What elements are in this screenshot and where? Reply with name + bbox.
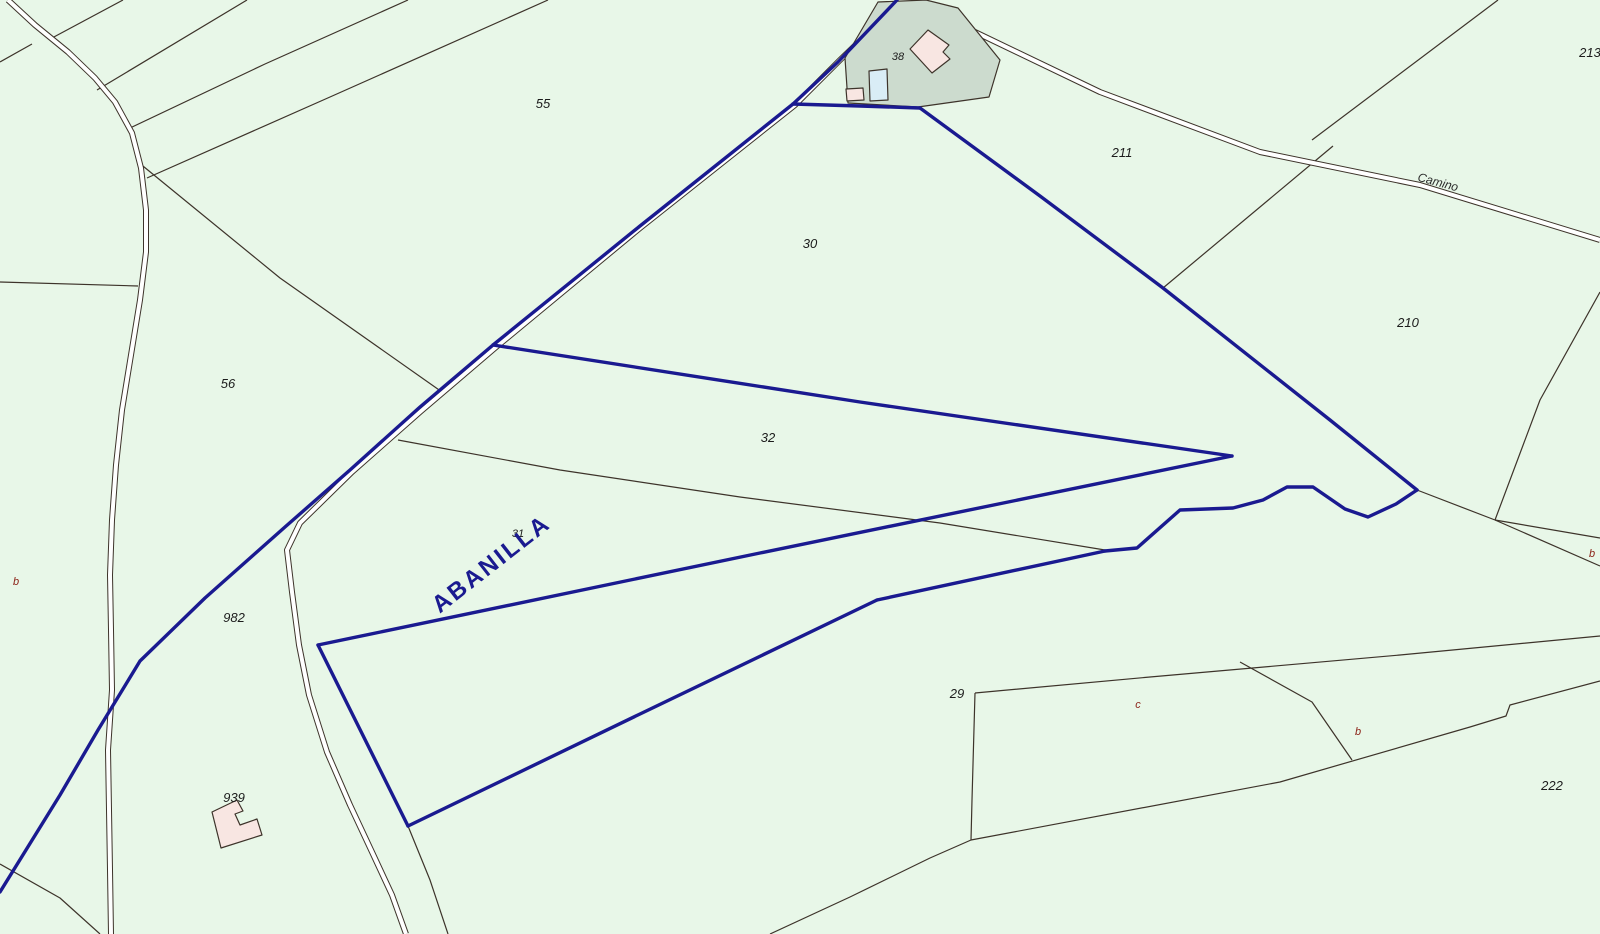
parcel-982-label: 982 xyxy=(223,610,245,625)
parcel-56-label: 56 xyxy=(221,376,236,391)
cadastral-map-canvas[interactable]: 5538211213Camino30210563231ABANILLAb982b… xyxy=(0,0,1600,934)
parcel-55-label: 55 xyxy=(536,96,551,111)
parcel-29-label: 29 xyxy=(949,686,964,701)
sub-parcel-b-bottom-label: b xyxy=(1355,726,1361,738)
parcel-222-label: 222 xyxy=(1540,778,1563,793)
parcel-210-label: 210 xyxy=(1396,315,1419,330)
map-viewport[interactable]: 5538211213Camino30210563231ABANILLAb982b… xyxy=(0,0,1600,934)
sub-parcel-b-left-label: b xyxy=(13,576,19,588)
sub-parcel-b-right-label: b xyxy=(1589,548,1595,560)
parcel-32-label: 32 xyxy=(761,430,776,445)
parcel-939-label: 939 xyxy=(223,790,245,805)
building-38-annex-pink xyxy=(846,88,864,101)
parcel-30-label: 30 xyxy=(803,236,818,251)
parcel-38-label: 38 xyxy=(892,51,905,63)
building-38-annex-blue xyxy=(869,69,888,101)
parcel-213-label: 213 xyxy=(1578,45,1600,60)
sub-parcel-c-label: c xyxy=(1135,699,1141,711)
parcel-211-label: 211 xyxy=(1111,145,1133,160)
